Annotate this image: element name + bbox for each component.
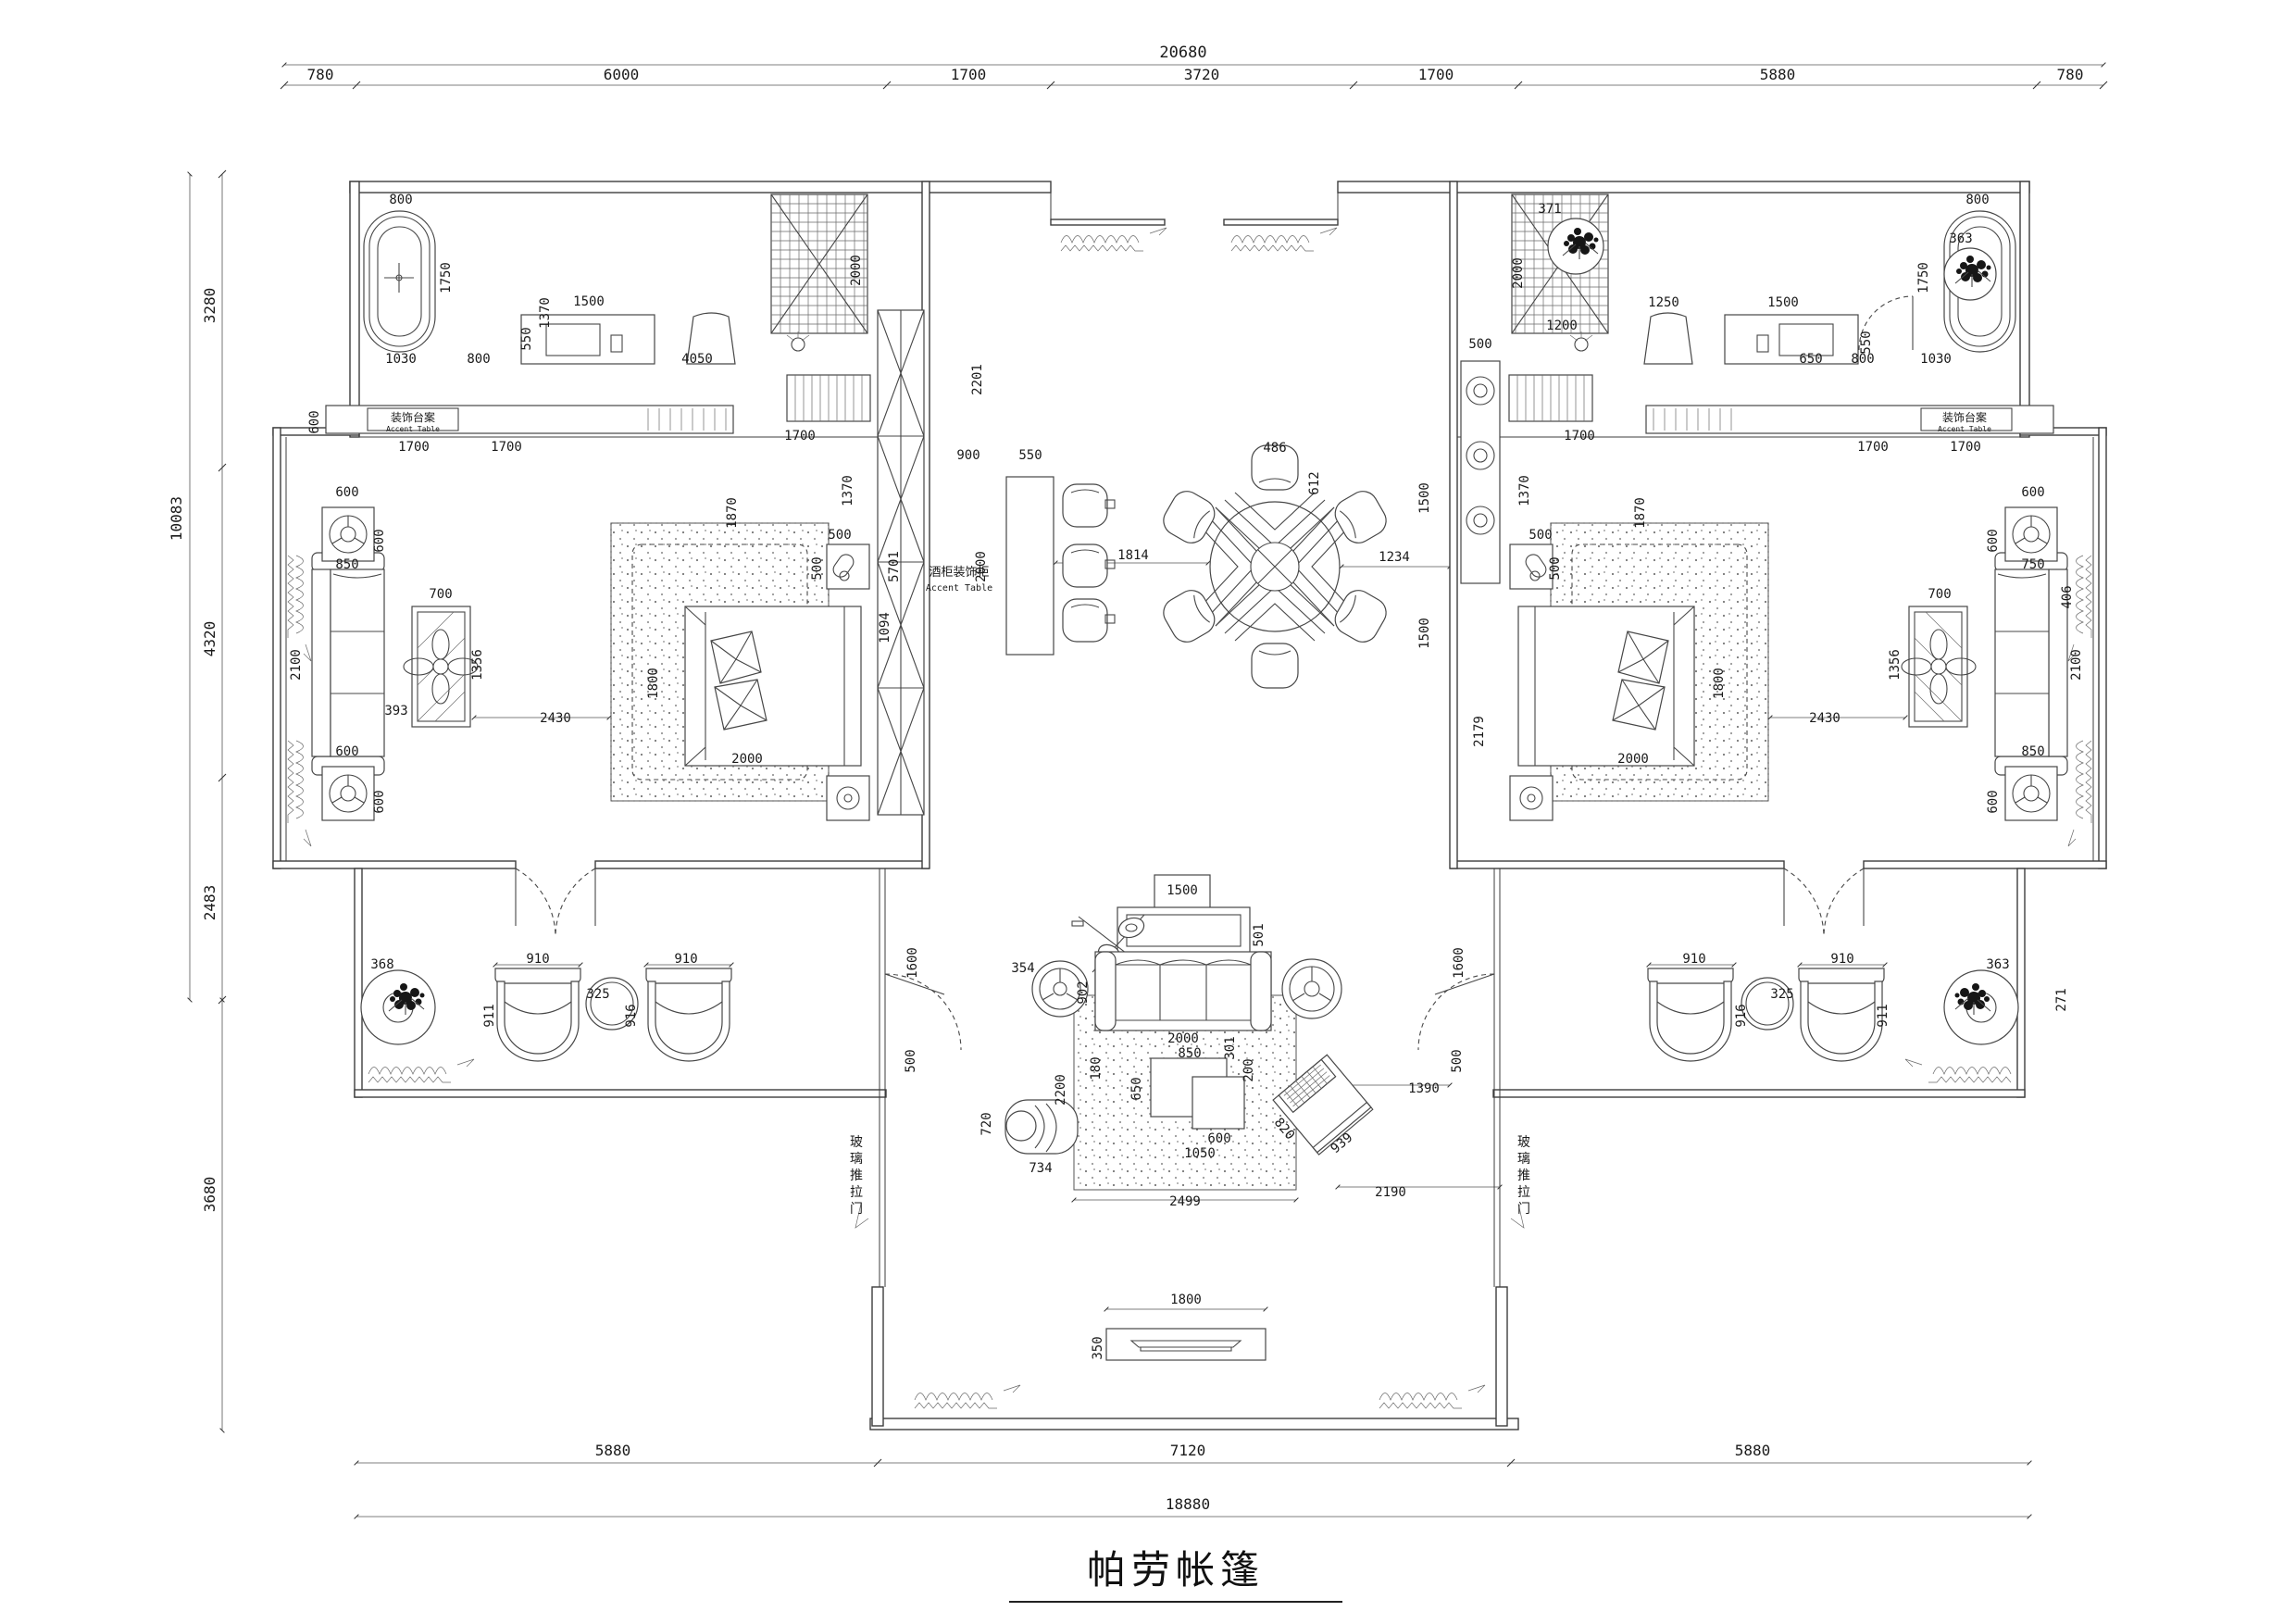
dimension-label: 550 xyxy=(1018,448,1042,463)
entry-curtain xyxy=(1231,228,1337,251)
dimension-label: 368 xyxy=(370,957,393,972)
dimension-label: 612 xyxy=(1307,471,1322,494)
entry-recess-wall xyxy=(1224,219,1338,225)
dimension-label: 393 xyxy=(384,704,407,718)
dimension-label: 1750 xyxy=(439,262,454,294)
dimension-label: 500 xyxy=(828,528,851,543)
dimension-label: 2499 xyxy=(1169,1194,1201,1209)
dimension-label: 600 xyxy=(1986,529,2001,552)
dimension-label: 910 xyxy=(1830,952,1853,967)
dimension-label: 800 xyxy=(1851,352,1874,367)
dimension-label: 900 xyxy=(956,448,980,463)
tv-console xyxy=(1106,1329,1266,1360)
dimension-label: 5880 xyxy=(1735,1442,1771,1459)
dimension-label: 1800 xyxy=(646,668,661,699)
dimension-label: 500 xyxy=(810,556,825,580)
dimension-label: 1370 xyxy=(841,475,855,506)
dimension-label: 486 xyxy=(1263,441,1286,456)
dimension-label: 1500 xyxy=(1167,883,1198,898)
dimension-label: 2000 xyxy=(1617,752,1649,767)
glass-sliding-wall-right xyxy=(1418,868,1524,1426)
dimension-label: 500 xyxy=(1529,528,1552,543)
dimension-label: 5880 xyxy=(595,1442,631,1459)
dimension-label: 5701 xyxy=(887,551,902,582)
dimension-label: 850 xyxy=(1178,1046,1201,1061)
dimension-label: 1234 xyxy=(1379,550,1410,565)
dimension-label: 1700 xyxy=(784,429,816,443)
dimension-label: 800 xyxy=(467,352,490,367)
dimension-label: 363 xyxy=(1949,231,1972,246)
dimension-label: 780 xyxy=(2057,66,2084,83)
dimension-label: 720 xyxy=(980,1112,994,1135)
dimension-label: 850 xyxy=(335,557,358,572)
accent-console-label-zh-right: 装饰台案 xyxy=(1942,410,1987,424)
dimension-label: 750 xyxy=(2021,557,2044,572)
dimension-label: 1700 xyxy=(951,66,987,83)
dimension-label: 1390 xyxy=(1408,1081,1440,1096)
top-wall-right xyxy=(1338,181,2029,193)
dimension-label: 910 xyxy=(526,952,549,967)
floor-plan-stage: 2068078060001700372017005880780100833280… xyxy=(0,0,2296,1624)
dimension-label: 1800 xyxy=(1170,1293,1202,1307)
dining-table xyxy=(1201,493,1349,641)
dimension-label: 350 xyxy=(1091,1336,1105,1359)
dimension-label: 271 xyxy=(2054,988,2069,1011)
dimension-label: 2430 xyxy=(1809,711,1841,726)
dimension-label: 6000 xyxy=(604,66,640,83)
plant xyxy=(1548,219,1603,274)
dimension-label: 501 xyxy=(1252,923,1267,946)
dimension-chains xyxy=(190,65,2107,1517)
dimension-label: 1700 xyxy=(1857,440,1889,455)
dimension-label: 1094 xyxy=(878,612,892,643)
bar-stools xyxy=(1063,484,1115,642)
sofa xyxy=(1095,952,1271,1031)
dimension-label: 700 xyxy=(429,587,452,602)
dimension-label: 5880 xyxy=(1760,66,1796,83)
drawing-title: 帕劳帐篷 xyxy=(1009,1539,1342,1603)
glass-sliding-door-label-right: 玻璃推拉门 xyxy=(1517,1135,1530,1217)
dimension-label: 406 xyxy=(2060,585,2075,608)
dimension-label: 2179 xyxy=(1472,716,1487,747)
dimension-label: 780 xyxy=(307,66,334,83)
dimension-label: 1700 xyxy=(1950,440,1981,455)
dimension-label: 650 xyxy=(1799,352,1822,367)
dimension-label: 500 xyxy=(904,1049,918,1072)
dimension-label: 325 xyxy=(1770,987,1793,1002)
entry-curtain xyxy=(1061,228,1167,251)
dimension-label: 3280 xyxy=(201,288,218,324)
plant xyxy=(1944,248,1996,300)
dimension-label: 3720 xyxy=(1184,66,1220,83)
dimension-label: 650 xyxy=(1129,1077,1144,1100)
dimension-label: 2000 xyxy=(1167,1031,1199,1046)
dimension-label: 1870 xyxy=(1633,497,1648,529)
dimension-label: 2000 xyxy=(974,551,989,582)
dimension-label: 20680 xyxy=(1159,44,1206,62)
dimension-label: 1370 xyxy=(538,297,553,329)
dimension-label: 1700 xyxy=(1418,66,1454,83)
top-wall-left xyxy=(350,181,1051,193)
dimension-label: 1600 xyxy=(905,947,920,979)
dimension-label: 2000 xyxy=(1511,257,1526,289)
floor-plan-drawing: 2068078060001700372017005880780100833280… xyxy=(0,0,2296,1624)
dimension-label: 2200 xyxy=(1054,1074,1068,1106)
dimension-label: 800 xyxy=(1965,193,1989,207)
dimension-label: 600 xyxy=(307,410,322,433)
dimension-label: 734 xyxy=(1029,1161,1052,1176)
dimension-label: 550 xyxy=(519,327,534,350)
dimension-label: 301 xyxy=(1223,1036,1238,1059)
dimension-label: 850 xyxy=(2021,744,2044,759)
dimension-label: 7120 xyxy=(1170,1442,1206,1459)
dimension-label: 550 xyxy=(1859,331,1874,354)
dimension-label: 1800 xyxy=(1712,668,1727,699)
dimension-label: 911 xyxy=(482,1004,497,1027)
dimension-label: 500 xyxy=(1450,1049,1465,1072)
dimension-label: 1030 xyxy=(385,352,417,367)
accent-console-label-en-left: Accent Table xyxy=(386,425,440,433)
bar-console xyxy=(1006,477,1054,655)
dimension-label: 1700 xyxy=(398,440,430,455)
dimension-label: 2000 xyxy=(849,255,864,286)
dimension-label: 2430 xyxy=(540,711,571,726)
dimension-label: 180 xyxy=(1089,1056,1104,1080)
dimension-label: 916 xyxy=(624,1004,639,1027)
dimension-label: 1030 xyxy=(1920,352,1952,367)
dimension-label: 1600 xyxy=(1452,947,1466,979)
dimension-label: 2100 xyxy=(2069,649,2084,681)
south-curtain xyxy=(915,1385,1020,1408)
dimension-label: 1870 xyxy=(725,497,740,529)
dimension-label: 18880 xyxy=(1166,1495,1210,1513)
dimension-label: 600 xyxy=(335,744,358,759)
dimension-label: 371 xyxy=(1538,202,1561,217)
dimension-label: 1356 xyxy=(1888,649,1903,681)
dimension-label: 1370 xyxy=(1517,475,1532,506)
dimension-label: 1356 xyxy=(470,649,485,681)
dimension-label: 10083 xyxy=(168,496,185,541)
dimension-label: 2201 xyxy=(970,364,985,395)
dimension-label: 1814 xyxy=(1117,548,1149,563)
dimension-label: 800 xyxy=(389,193,412,207)
south-curtain xyxy=(1379,1385,1485,1408)
dimension-label: 902 xyxy=(1076,981,1091,1004)
building-shell xyxy=(350,181,2029,1430)
dimension-label: 1250 xyxy=(1648,295,1679,310)
dimension-label: 600 xyxy=(372,529,387,552)
dimension-label: 500 xyxy=(1468,337,1491,352)
dimension-label: 911 xyxy=(1876,1004,1890,1027)
dimension-label: 600 xyxy=(335,485,358,500)
dimension-label: 325 xyxy=(586,987,609,1002)
dimension-label: 2483 xyxy=(201,885,218,921)
sink-counter-right xyxy=(1461,361,1500,583)
dimension-label: 1500 xyxy=(573,294,605,309)
dimension-label: 2190 xyxy=(1375,1185,1406,1200)
accent-console-label-en-right: Accent Table xyxy=(1938,425,1991,433)
dimension-annotations: 2068078060001700372017005880780100833280… xyxy=(168,44,2084,1513)
round-side-table xyxy=(1282,959,1341,1018)
dimension-label: 600 xyxy=(372,790,387,813)
dimension-label: 3680 xyxy=(201,1177,218,1213)
dimension-label: 200 xyxy=(1242,1058,1256,1081)
dimension-label: 1700 xyxy=(1564,429,1595,443)
accent-console-label-zh-left: 装饰台案 xyxy=(391,410,435,424)
dimension-label: 910 xyxy=(1682,952,1705,967)
dimension-label: 2100 xyxy=(289,649,304,681)
dimension-label: 2000 xyxy=(731,752,763,767)
dimension-label: 916 xyxy=(1734,1004,1749,1027)
dimension-label: 600 xyxy=(1986,790,2001,813)
dimension-label: 910 xyxy=(674,952,697,967)
dimension-label: 1050 xyxy=(1184,1146,1216,1161)
dimension-label: 700 xyxy=(1928,587,1951,602)
chaise-lounge xyxy=(1005,1100,1078,1154)
entry-recess-wall xyxy=(1051,219,1165,225)
dimension-label: 600 xyxy=(2021,485,2044,500)
wine-cabinet-label-en: Accent Table xyxy=(926,583,992,593)
dimension-label: 600 xyxy=(1207,1131,1230,1146)
dimension-label: 1500 xyxy=(1417,618,1432,649)
dimension-label: 1750 xyxy=(1916,262,1931,294)
dimension-label: 354 xyxy=(1011,961,1034,976)
south-wall-center xyxy=(870,1418,1518,1430)
dimension-label: 4050 xyxy=(681,352,713,367)
dimension-label: 500 xyxy=(1548,556,1563,580)
dimension-label: 1500 xyxy=(1417,482,1432,514)
dimension-label: 1200 xyxy=(1546,319,1578,333)
dimension-label: 1700 xyxy=(491,440,522,455)
glass-sliding-door-label-left: 玻璃推拉门 xyxy=(850,1135,863,1217)
dimension-label: 4320 xyxy=(201,621,218,657)
dimension-label: 363 xyxy=(1986,957,2009,972)
dimension-label: 1500 xyxy=(1767,295,1799,310)
